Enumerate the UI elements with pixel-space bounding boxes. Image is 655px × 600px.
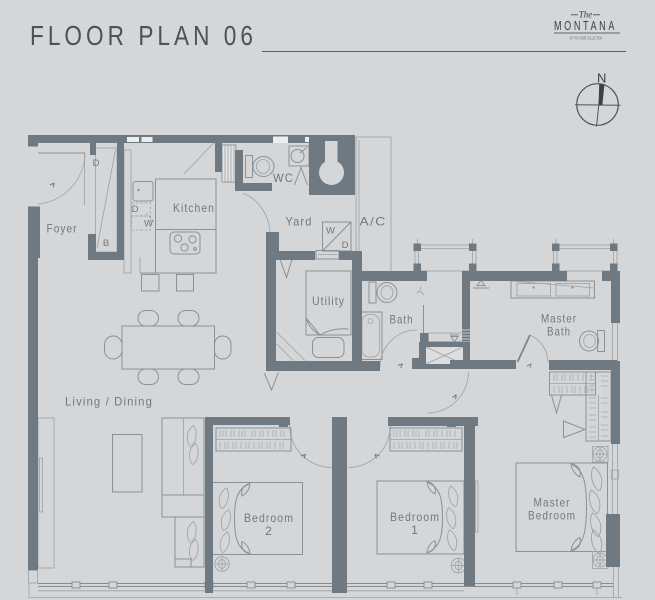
svg-text:B: B [103,238,109,249]
svg-text:2: 2 [265,524,273,538]
svg-text:Utility: Utility [312,294,345,308]
svg-text:W: W [144,219,153,230]
svg-text:D: D [93,158,100,169]
svg-text:Kitchen: Kitchen [173,201,215,215]
svg-text:MONTANA: MONTANA [554,19,617,33]
svg-text:Bedroom: Bedroom [528,509,576,523]
svg-text:D: D [342,240,349,251]
svg-text:D: D [132,204,139,215]
svg-text:FLOOR PLAN 06: FLOOR PLAN 06 [30,20,257,51]
svg-text:WC: WC [273,171,294,185]
svg-text:Living / Dining: Living / Dining [65,395,153,409]
svg-text:Master: Master [534,496,571,510]
svg-text:1: 1 [411,523,419,537]
svg-text:Yard: Yard [286,215,313,229]
svg-text:A/C: A/C [360,215,387,229]
svg-text:Foyer: Foyer [47,222,78,236]
svg-text:The: The [579,10,593,20]
svg-text:Bath: Bath [547,325,571,339]
svg-text:Bath: Bath [390,313,414,327]
svg-text:- BY THE HOME COLLECTION -: - BY THE HOME COLLECTION - [569,35,604,40]
svg-text:Bedroom: Bedroom [390,510,440,524]
svg-text:Master: Master [541,312,577,326]
svg-text:Bedroom: Bedroom [244,511,294,525]
svg-text:W: W [326,226,335,237]
